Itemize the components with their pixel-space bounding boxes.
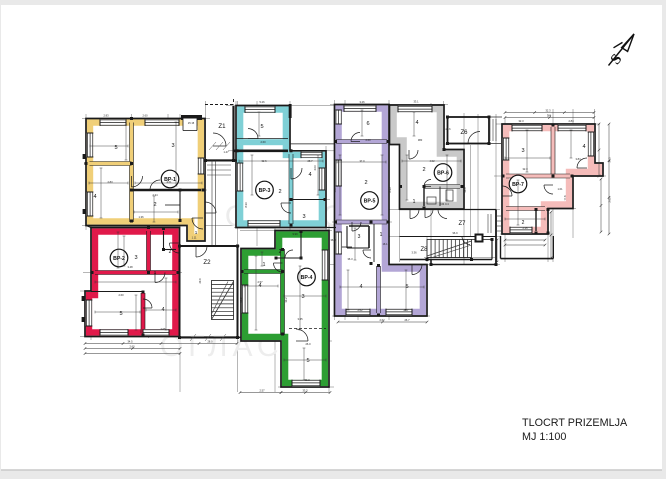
svg-text:33.2: 33.2 [284, 297, 288, 303]
svg-text:16.1: 16.1 [382, 242, 388, 246]
svg-text:4.09: 4.09 [333, 187, 337, 193]
svg-text:4.01: 4.01 [166, 180, 172, 184]
svg-text:36.3: 36.3 [347, 257, 353, 261]
svg-text:9.99: 9.99 [292, 232, 298, 236]
svg-text:3.36: 3.36 [411, 251, 417, 255]
svg-text:Z7: Z7 [458, 221, 466, 227]
svg-text:2.84: 2.84 [568, 119, 574, 123]
svg-text:29.9: 29.9 [198, 278, 202, 284]
svg-text:77.6: 77.6 [563, 195, 567, 201]
svg-text:1: 1 [154, 270, 157, 275]
svg-text:3.84: 3.84 [575, 157, 581, 161]
svg-text:Z2: Z2 [203, 259, 211, 266]
svg-text:4: 4 [582, 144, 585, 150]
svg-text:2.62: 2.62 [357, 308, 363, 312]
svg-text:3: 3 [134, 255, 137, 261]
svg-text:8.33: 8.33 [244, 202, 248, 208]
svg-text:2.57: 2.57 [259, 389, 265, 393]
svg-text:34.3: 34.3 [608, 157, 612, 163]
svg-text:3: 3 [358, 234, 361, 240]
svg-text:1.11: 1.11 [192, 236, 197, 240]
svg-text:26.0: 26.0 [305, 342, 311, 346]
svg-text:2.83: 2.83 [107, 180, 113, 184]
svg-text:26.7: 26.7 [404, 318, 410, 322]
svg-text:1.36: 1.36 [138, 215, 144, 219]
svg-text:BP-2: BP-2 [113, 256, 125, 262]
svg-text:1.01: 1.01 [557, 187, 563, 191]
svg-text:33.3: 33.3 [304, 378, 310, 382]
svg-text:4.02: 4.02 [429, 159, 435, 163]
svg-text:4.03: 4.03 [313, 165, 317, 171]
svg-text:32.3: 32.3 [545, 109, 551, 113]
svg-text:380: 380 [418, 138, 423, 142]
svg-text:1: 1 [263, 262, 266, 268]
svg-text:96.9: 96.9 [463, 187, 467, 193]
svg-text:2.05: 2.05 [160, 327, 166, 331]
svg-text:6: 6 [366, 121, 369, 127]
svg-text:2: 2 [422, 167, 425, 173]
svg-text:2.36: 2.36 [522, 226, 528, 230]
svg-text:Z8: Z8 [420, 247, 428, 253]
svg-text:32.3: 32.3 [518, 119, 524, 123]
svg-text:1.47: 1.47 [223, 150, 229, 154]
svg-text:34.5: 34.5 [127, 340, 133, 344]
svg-text:2.60: 2.60 [118, 293, 124, 297]
svg-text:1: 1 [413, 199, 416, 205]
svg-text:3: 3 [302, 214, 305, 220]
svg-text:2: 2 [169, 249, 172, 255]
svg-text:28.7: 28.7 [307, 159, 313, 163]
svg-text:2.65: 2.65 [608, 197, 612, 203]
svg-text:2: 2 [522, 220, 525, 226]
svg-text:3.35: 3.35 [297, 317, 303, 321]
svg-text:26.7: 26.7 [403, 308, 409, 312]
svg-text:1: 1 [195, 230, 198, 235]
svg-text:33.1: 33.1 [413, 100, 419, 104]
svg-text:BP-5: BP-5 [364, 198, 376, 204]
svg-text:Z1: Z1 [218, 123, 226, 130]
svg-text:2.34: 2.34 [152, 193, 158, 197]
svg-text:2.83: 2.83 [103, 114, 109, 118]
svg-text:BP-4: BP-4 [301, 275, 313, 281]
svg-text:5: 5 [260, 124, 263, 130]
svg-text:Z6: Z6 [460, 130, 468, 136]
svg-text:4: 4 [93, 194, 96, 200]
svg-text:2.62: 2.62 [379, 318, 385, 322]
svg-text:32.3: 32.3 [522, 167, 528, 171]
svg-text:8.33: 8.33 [388, 187, 392, 193]
svg-text:2.60: 2.60 [142, 114, 148, 118]
svg-text:33.3: 33.3 [302, 389, 308, 393]
svg-text:96.9: 96.9 [452, 231, 458, 235]
svg-text:27.6: 27.6 [445, 127, 451, 131]
svg-text:BP-6: BP-6 [437, 170, 449, 176]
svg-text:3: 3 [301, 294, 304, 300]
svg-text:384: 384 [547, 114, 552, 118]
svg-text:2: 2 [278, 189, 281, 195]
svg-text:2.60: 2.60 [365, 138, 371, 142]
svg-text:0.64 0.4: 0.64 0.4 [439, 202, 449, 206]
svg-text:28.0: 28.0 [207, 340, 213, 344]
svg-text:3: 3 [171, 143, 174, 149]
svg-text:33.2: 33.2 [239, 297, 243, 303]
svg-text:4: 4 [308, 172, 311, 178]
svg-text:15 15: 15 15 [188, 121, 195, 125]
svg-text:MJ 1:100: MJ 1:100 [522, 431, 566, 443]
svg-text:1: 1 [380, 232, 383, 238]
svg-text:2.57: 2.57 [257, 280, 263, 284]
svg-text:3.26: 3.26 [359, 100, 365, 104]
svg-text:2.60: 2.60 [129, 345, 135, 349]
svg-text:36.3: 36.3 [330, 238, 336, 242]
svg-text:TLOCRT PRIZEMLJA: TLOCRT PRIZEMLJA [522, 417, 628, 429]
svg-text:BP-3: BP-3 [259, 188, 271, 194]
svg-text:2.60: 2.60 [260, 140, 266, 144]
svg-text:3: 3 [521, 148, 524, 154]
svg-text:2: 2 [364, 180, 367, 186]
svg-text:37.0: 37.0 [359, 159, 365, 163]
svg-text:5.26: 5.26 [259, 100, 265, 104]
svg-text:5: 5 [306, 358, 309, 364]
svg-text:4: 4 [415, 120, 418, 126]
svg-text:3.48: 3.48 [127, 265, 133, 269]
svg-text:32.6: 32.6 [261, 159, 267, 163]
